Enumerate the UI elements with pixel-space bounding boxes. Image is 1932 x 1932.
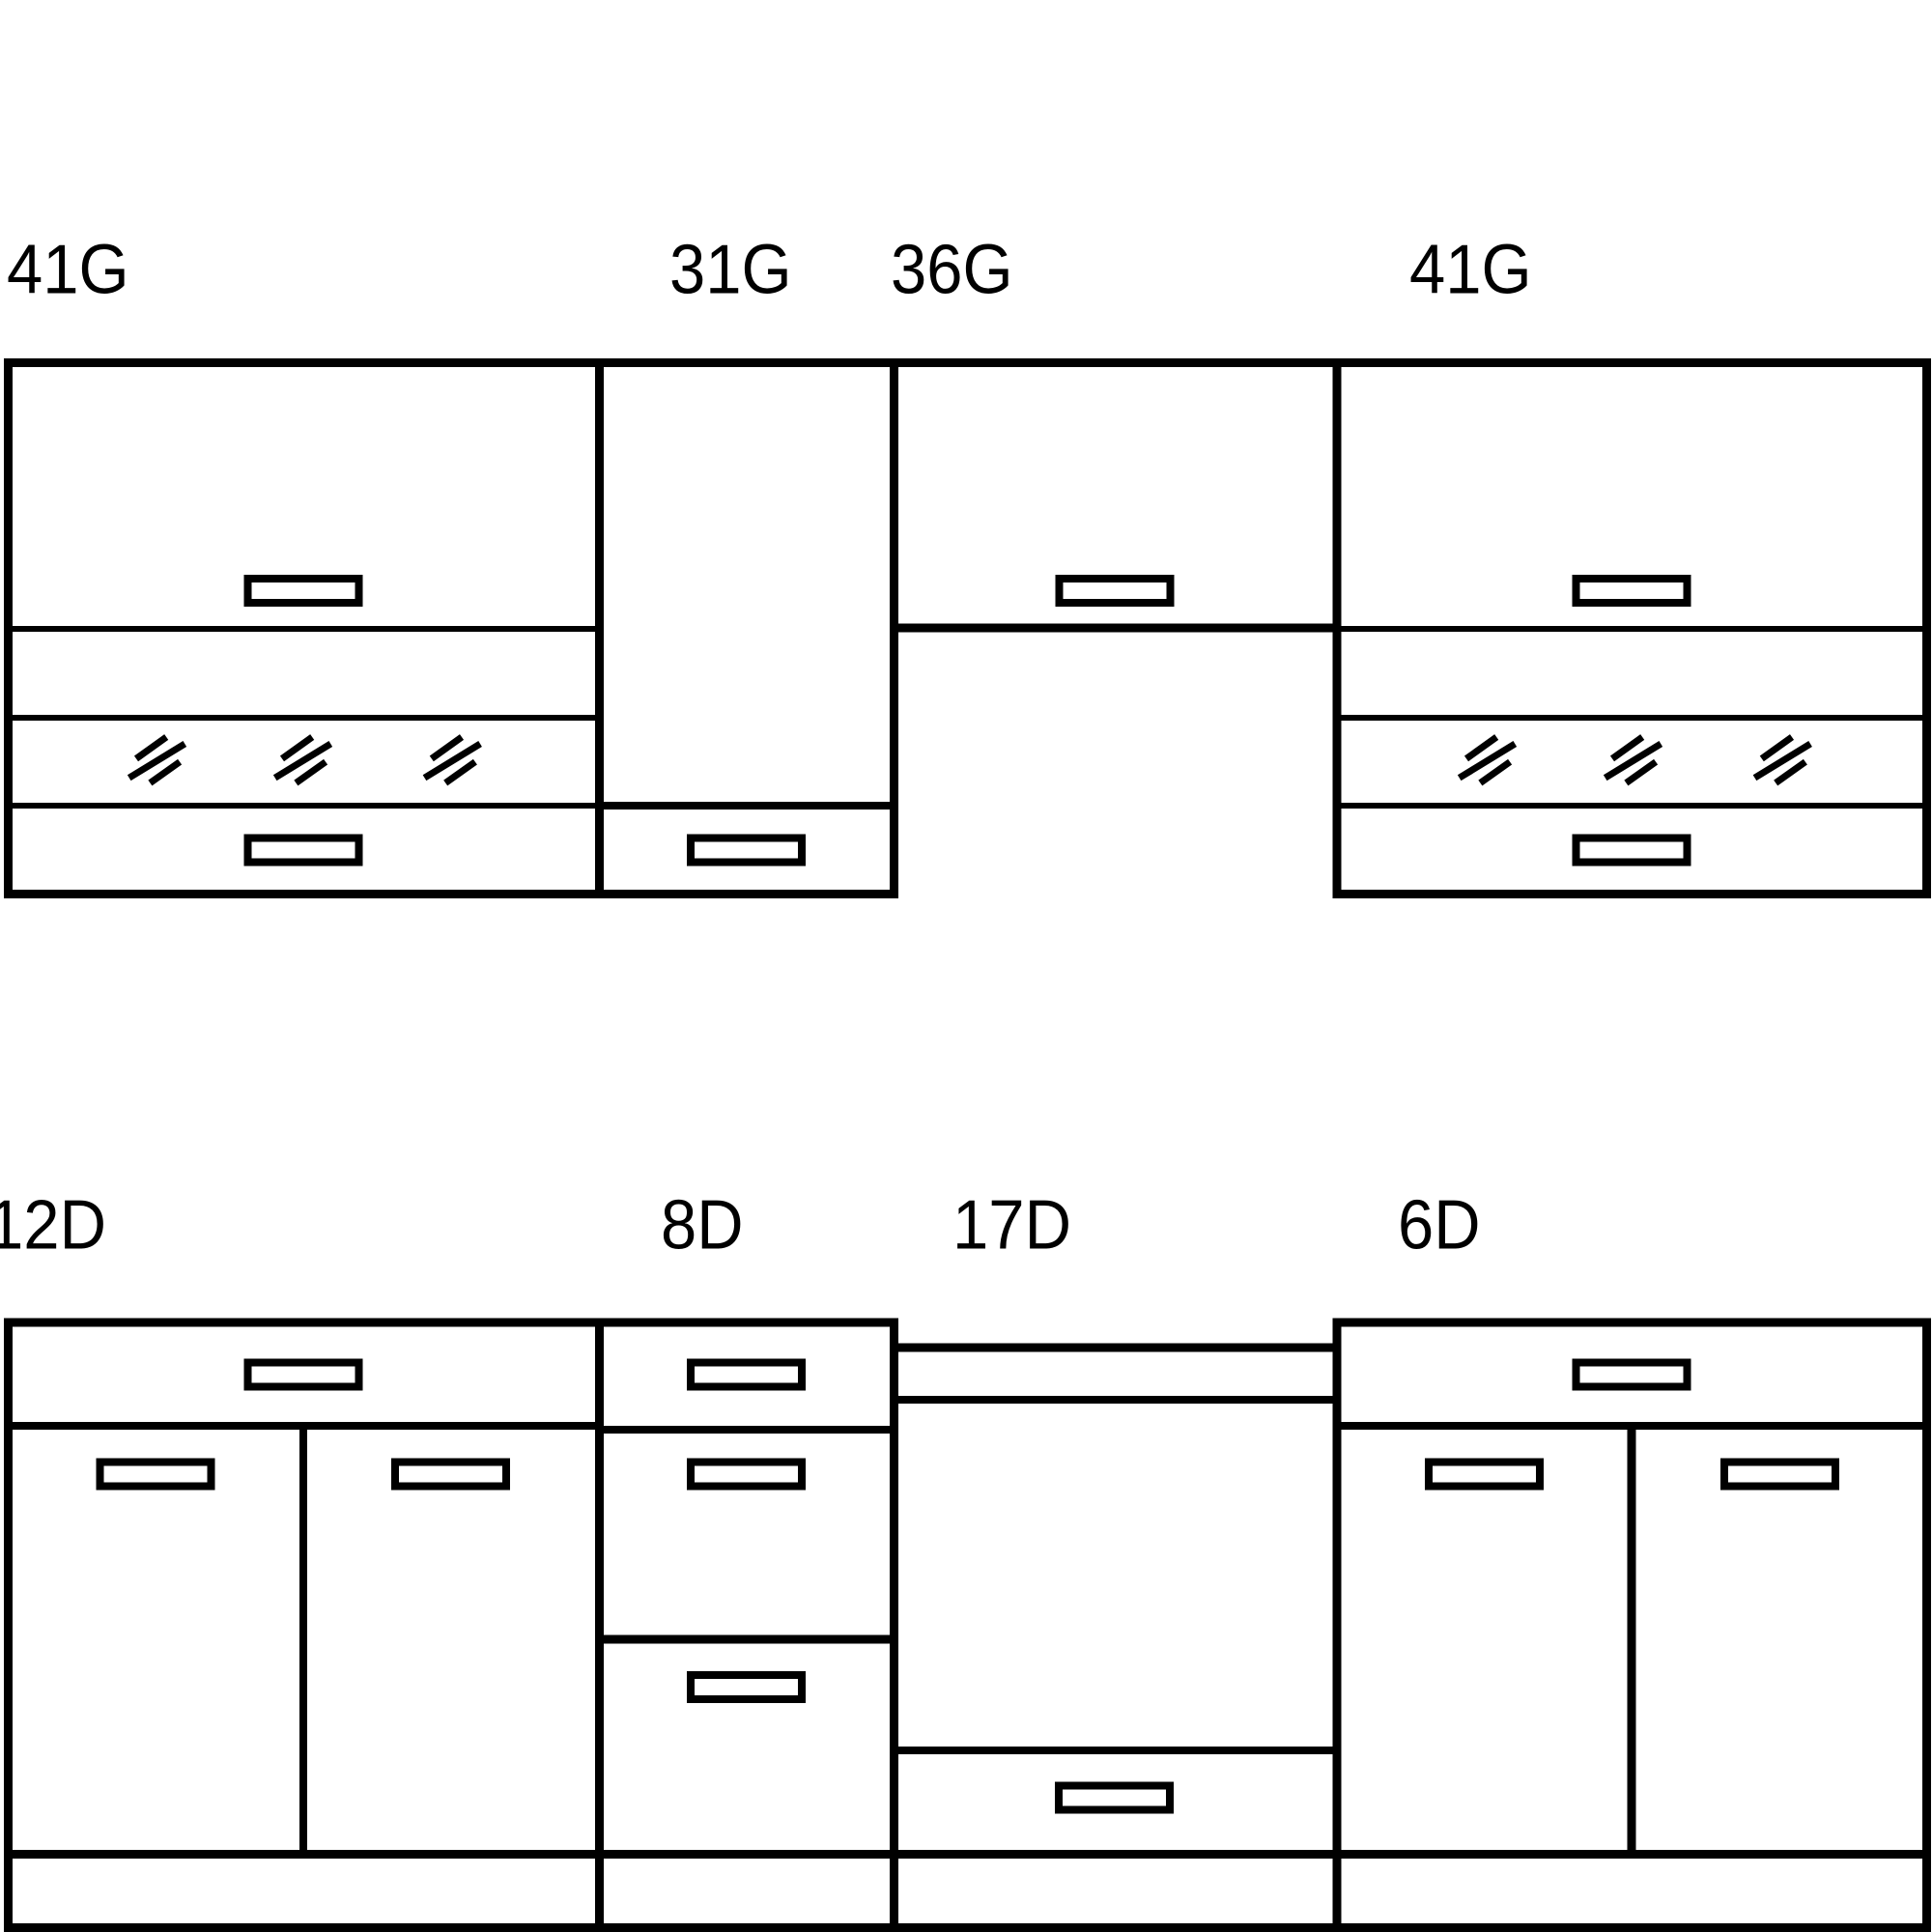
svg-text:17D: 17D xyxy=(952,1187,1071,1264)
svg-text:41G: 41G xyxy=(1409,232,1532,309)
svg-text:36G: 36G xyxy=(891,232,1013,309)
svg-text:12D: 12D xyxy=(0,1187,106,1264)
svg-text:8D: 8D xyxy=(661,1187,744,1264)
svg-text:41G: 41G xyxy=(7,232,129,309)
svg-text:6D: 6D xyxy=(1398,1187,1481,1264)
svg-text:31G: 31G xyxy=(669,232,792,309)
